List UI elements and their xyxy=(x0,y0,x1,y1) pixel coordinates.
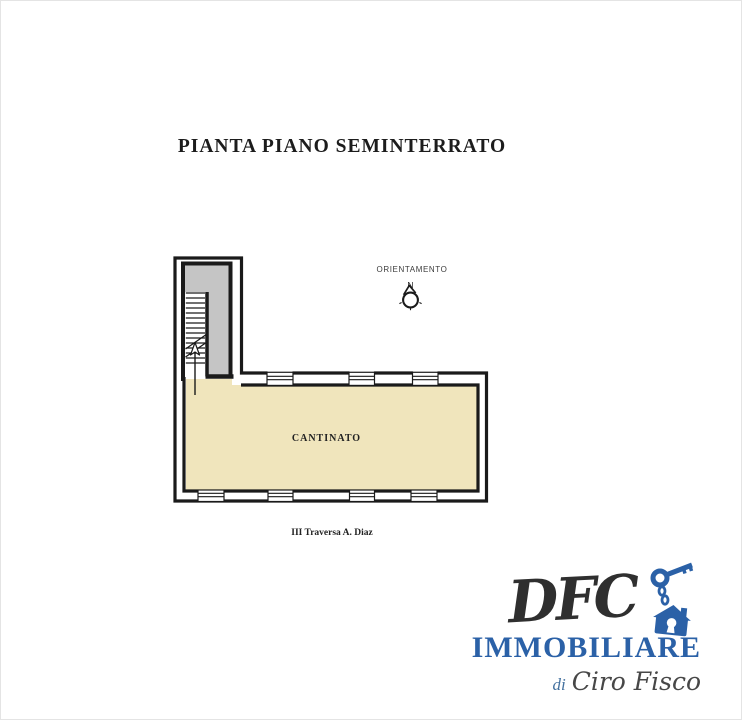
window xyxy=(268,490,293,502)
room-label: CANTINATO xyxy=(292,433,361,444)
key-house-icon xyxy=(639,561,701,641)
window xyxy=(198,490,224,502)
window xyxy=(413,371,439,385)
window xyxy=(411,490,437,502)
street-label: III Traversa A. Diaz xyxy=(291,528,373,538)
logo-top-row: DFC xyxy=(421,561,701,641)
window xyxy=(349,371,375,385)
logo-owner-prefix: di xyxy=(552,675,565,694)
floor-plan-page: PIANTA PIANO SEMINTERRATO ORIENTAMENTO N xyxy=(0,0,742,720)
orientation-label: ORIENTAMENTO xyxy=(377,265,448,274)
window xyxy=(350,490,375,502)
north-indicator: ORIENTAMENTO N xyxy=(377,265,448,310)
agency-logo: DFC IMMOBILIARE diCir xyxy=(421,561,701,696)
window xyxy=(267,371,293,385)
logo-owner-line: diCiro Fisco xyxy=(421,667,701,696)
building-plan: CANTINATO xyxy=(175,258,487,502)
top-wall-windows xyxy=(267,371,438,385)
page-title: PIANTA PIANO SEMINTERRATO xyxy=(178,136,506,157)
north-compass-icon xyxy=(399,285,421,310)
logo-owner-name: Ciro Fisco xyxy=(572,667,701,696)
logo-wordmark: DFC xyxy=(506,558,638,641)
